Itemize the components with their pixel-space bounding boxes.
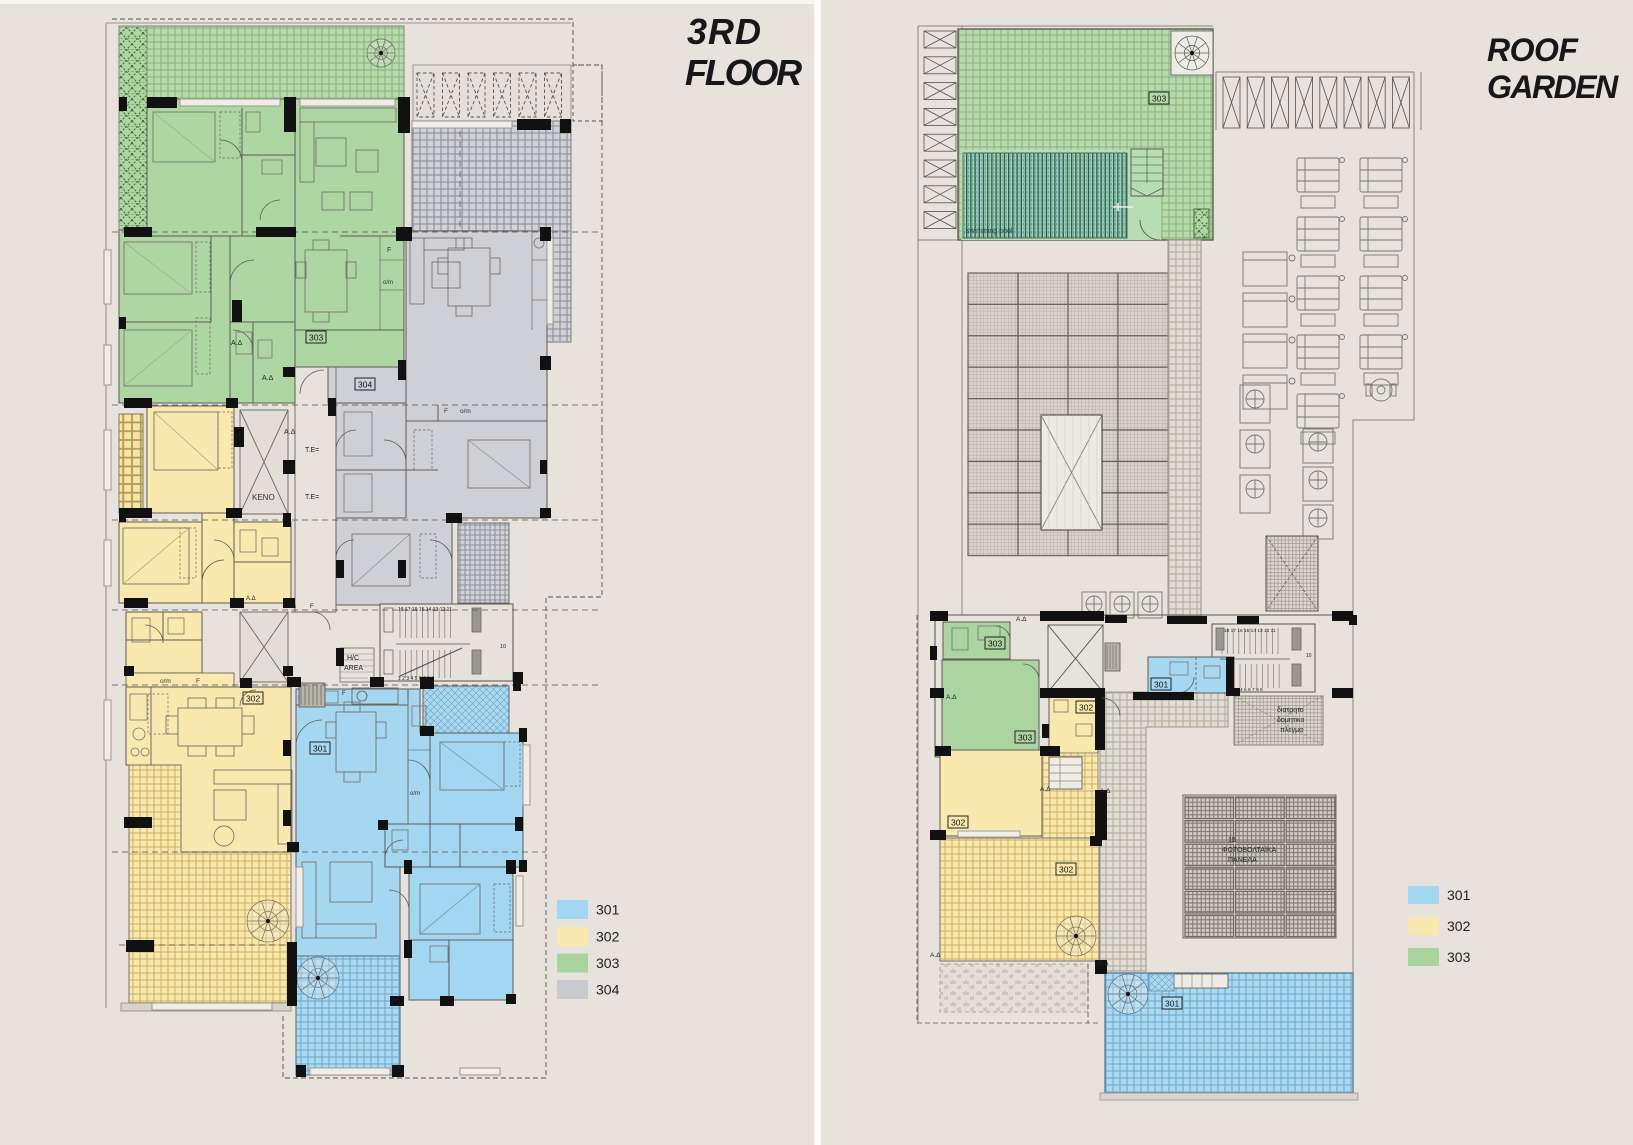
svg-text:F: F xyxy=(196,678,200,685)
svg-text:AREA: AREA xyxy=(344,665,363,672)
svg-text:ΠΑΝΕΛΑ: ΠΑΝΕΛΑ xyxy=(1228,857,1257,864)
svg-text:303: 303 xyxy=(1447,949,1471,965)
svg-text:A.Δ: A.Δ xyxy=(284,429,296,436)
svg-text:304: 304 xyxy=(596,982,620,998)
svg-text:o/m: o/m xyxy=(160,678,171,685)
svg-text:301: 301 xyxy=(1447,887,1471,903)
svg-text:10: 10 xyxy=(1306,653,1312,659)
svg-text:δομητικο: δομητικο xyxy=(1277,717,1304,724)
svg-text:πλεγμα: πλεγμα xyxy=(1280,727,1303,734)
svg-text:F: F xyxy=(310,604,314,610)
svg-text:ΦΩΤΟΒΟΛΤΑΪΚΑ: ΦΩΤΟΒΟΛΤΑΪΚΑ xyxy=(1222,846,1277,854)
svg-text:swimming pool: swimming pool xyxy=(966,228,1013,235)
svg-text:A.Δ: A.Δ xyxy=(246,596,256,602)
svg-text:302: 302 xyxy=(1447,918,1471,934)
svg-text:A.Δ: A.Δ xyxy=(1100,788,1111,795)
svg-text:302: 302 xyxy=(596,929,620,945)
svg-text:A.Δ: A.Δ xyxy=(946,694,957,701)
svg-text:T.E=: T.E= xyxy=(305,494,319,501)
svg-text:303: 303 xyxy=(309,333,323,343)
svg-text:FLOOR: FLOOR xyxy=(685,52,802,93)
svg-text:A.Δ: A.Δ xyxy=(930,952,941,959)
svg-text:4 5 6 7 8 9: 4 5 6 7 8 9 xyxy=(1240,687,1263,693)
svg-text:διατρητο: διατρητο xyxy=(1277,707,1304,714)
svg-text:F: F xyxy=(342,691,346,697)
svg-text:303: 303 xyxy=(1152,94,1166,104)
svg-text:18 17 16 15 14 13 12 11: 18 17 16 15 14 13 12 11 xyxy=(1224,628,1276,634)
svg-text:o/m: o/m xyxy=(410,791,420,797)
svg-text:302: 302 xyxy=(951,818,965,828)
svg-text:F: F xyxy=(387,247,391,254)
svg-text:GARDEN: GARDEN xyxy=(1487,69,1619,105)
svg-text:302: 302 xyxy=(1059,865,1073,875)
svg-text:303: 303 xyxy=(1018,733,1032,743)
svg-text:303: 303 xyxy=(988,639,1002,649)
svg-text:A.Δ: A.Δ xyxy=(262,375,274,382)
svg-text:304: 304 xyxy=(358,380,372,390)
svg-text:ROOF: ROOF xyxy=(1487,32,1579,68)
svg-text:3RD: 3RD xyxy=(687,11,762,52)
svg-text:A.Δ: A.Δ xyxy=(231,340,243,347)
svg-text:T.E=: T.E= xyxy=(305,447,319,454)
svg-text:10: 10 xyxy=(500,644,506,650)
svg-text:303: 303 xyxy=(596,955,620,971)
svg-text:F: F xyxy=(444,408,448,415)
svg-text:301: 301 xyxy=(1165,999,1179,1009)
svg-text:A.Δ: A.Δ xyxy=(1098,960,1109,967)
svg-text:301: 301 xyxy=(313,744,327,754)
svg-text:H/C: H/C xyxy=(347,655,359,662)
svg-text:302: 302 xyxy=(246,694,260,704)
svg-text:A.Δ: A.Δ xyxy=(1016,616,1027,623)
svg-text:o/m: o/m xyxy=(383,280,393,286)
svg-text:301: 301 xyxy=(1154,680,1168,690)
svg-text:o/m: o/m xyxy=(460,408,471,415)
svg-text:15: 15 xyxy=(1228,837,1236,844)
svg-text:A.Δ: A.Δ xyxy=(1040,786,1051,793)
svg-text:302: 302 xyxy=(1079,703,1093,713)
svg-text:301: 301 xyxy=(596,902,620,918)
svg-text:KENO: KENO xyxy=(252,493,275,502)
